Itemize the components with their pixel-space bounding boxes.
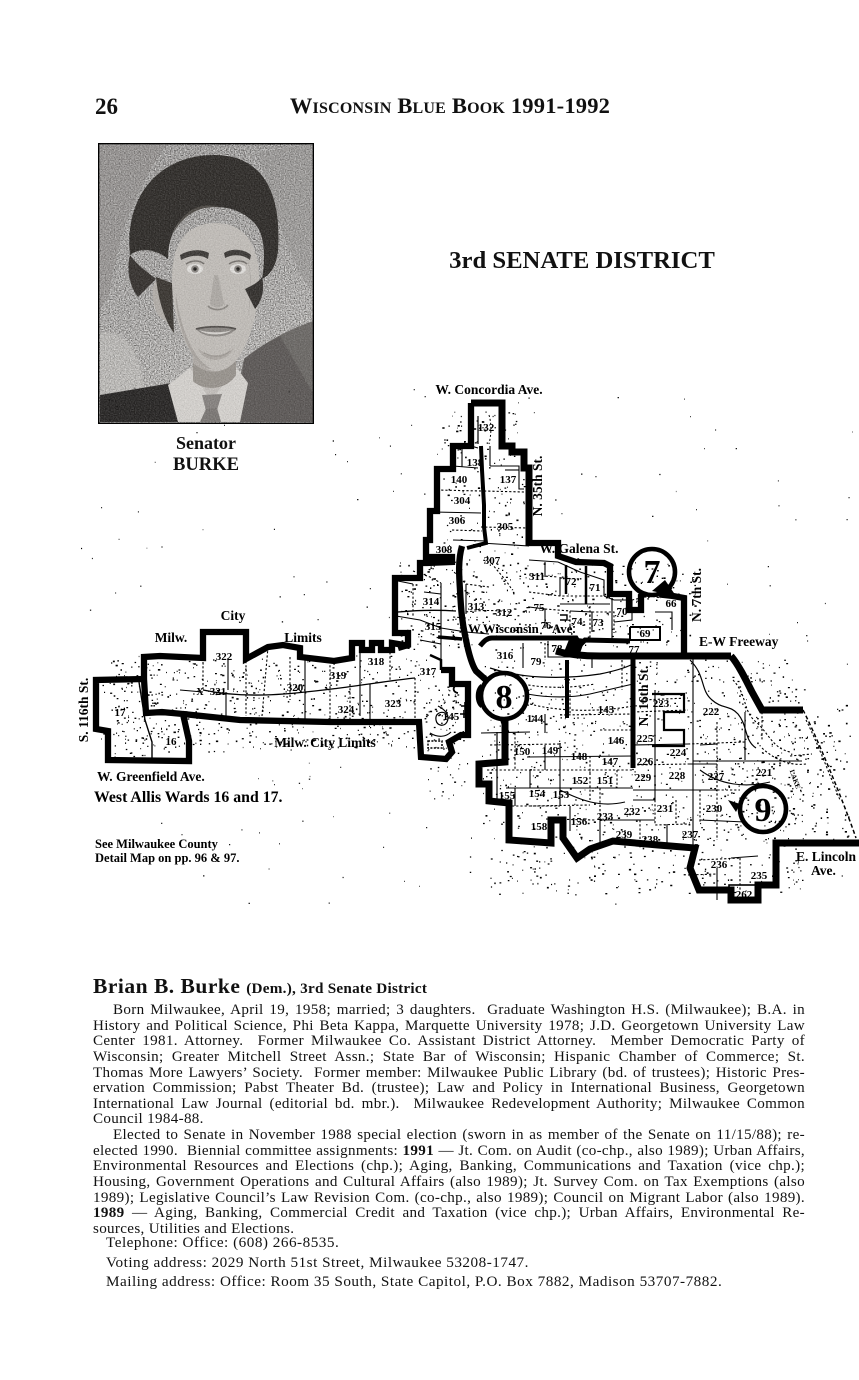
svg-text:Milw.: Milw.	[155, 630, 188, 645]
svg-text:West Allis Wards 16 and 17.: West Allis Wards 16 and 17.	[94, 789, 282, 806]
svg-text:N. 7th St.: N. 7th St.	[689, 568, 704, 622]
svg-text:W. Concordia Ave.: W. Concordia Ave.	[435, 382, 542, 397]
svg-text:77: 77	[629, 644, 641, 656]
svg-text:S. 116th St.: S. 116th St.	[76, 678, 91, 743]
svg-text:232: 232	[624, 806, 641, 818]
svg-text:322: 322	[216, 651, 233, 663]
svg-text:75: 75	[534, 602, 546, 614]
svg-text:66: 66	[666, 598, 678, 610]
svg-text:7: 7	[644, 554, 661, 591]
svg-text:79: 79	[531, 656, 543, 668]
svg-text:158: 158	[531, 821, 548, 833]
svg-text:316: 316	[497, 650, 514, 662]
svg-text:E. Lincoln: E. Lincoln	[796, 849, 857, 864]
svg-text:225: 225	[637, 733, 654, 745]
svg-text:154: 154	[529, 788, 546, 800]
svg-text:319: 319	[330, 670, 347, 682]
svg-text:Limits: Limits	[284, 630, 322, 645]
svg-text:9: 9	[755, 792, 772, 829]
svg-text:314: 314	[423, 596, 440, 608]
svg-text:151: 151	[597, 775, 614, 787]
svg-text:140: 140	[451, 474, 468, 486]
svg-text:147: 147	[602, 756, 619, 768]
svg-text:150: 150	[514, 746, 531, 758]
svg-text:71: 71	[590, 582, 601, 594]
svg-text:W.Wisconsin: W.Wisconsin	[468, 622, 539, 636]
svg-text:313: 313	[468, 601, 485, 613]
svg-text:231: 231	[657, 803, 674, 815]
svg-text:318: 318	[368, 656, 385, 668]
svg-text:W. Greenfield Ave.: W. Greenfield Ave.	[97, 769, 205, 784]
svg-text:321: 321	[210, 686, 227, 698]
svg-text:143: 143	[598, 704, 615, 716]
svg-text:224: 224	[670, 747, 687, 759]
svg-text:Detail Map on pp. 96 & 97.: Detail Map on pp. 96 & 97.	[95, 851, 239, 865]
svg-text:312: 312	[496, 607, 513, 619]
svg-text:235: 235	[751, 870, 768, 882]
svg-text:308: 308	[436, 544, 453, 556]
svg-text:306: 306	[449, 515, 466, 527]
svg-text:230: 230	[706, 803, 723, 815]
svg-text:222: 222	[703, 706, 720, 718]
svg-text:See Milwaukee County: See Milwaukee County	[95, 837, 219, 851]
svg-text:E-W Freeway: E-W Freeway	[699, 634, 779, 649]
svg-text:153: 153	[553, 789, 570, 801]
svg-text:N. 35th St.: N. 35th St.	[530, 456, 545, 517]
svg-text:146: 146	[608, 735, 625, 747]
svg-text:LAKE: LAKE	[788, 769, 802, 791]
svg-text:221: 221	[756, 767, 773, 779]
svg-text:16: 16	[166, 736, 178, 748]
svg-text:238: 238	[642, 834, 659, 846]
svg-text:226: 226	[637, 756, 654, 768]
svg-text:73: 73	[593, 617, 605, 629]
svg-text:137: 137	[500, 474, 517, 486]
svg-text:Ave.: Ave.	[811, 863, 836, 878]
svg-text:City: City	[221, 608, 246, 623]
svg-text:145: 145	[443, 711, 460, 723]
svg-text:237: 237	[682, 829, 699, 841]
svg-text:156: 156	[571, 816, 588, 828]
svg-text:152: 152	[572, 775, 589, 787]
svg-text:311: 311	[529, 571, 545, 583]
svg-text:324: 324	[338, 704, 355, 716]
svg-text:228: 228	[669, 770, 686, 782]
svg-text:229: 229	[635, 772, 652, 784]
svg-text:69: 69	[640, 628, 652, 640]
svg-text:239: 239	[616, 829, 633, 841]
svg-text:304: 304	[454, 495, 471, 507]
svg-text:149: 149	[542, 745, 559, 757]
svg-text:307: 307	[484, 555, 501, 567]
svg-text:262: 262	[736, 889, 753, 901]
svg-text:78: 78	[552, 643, 564, 655]
svg-text:236: 236	[711, 859, 728, 871]
svg-text:155: 155	[499, 790, 516, 802]
svg-text:W. Galena St.: W. Galena St.	[539, 541, 618, 556]
